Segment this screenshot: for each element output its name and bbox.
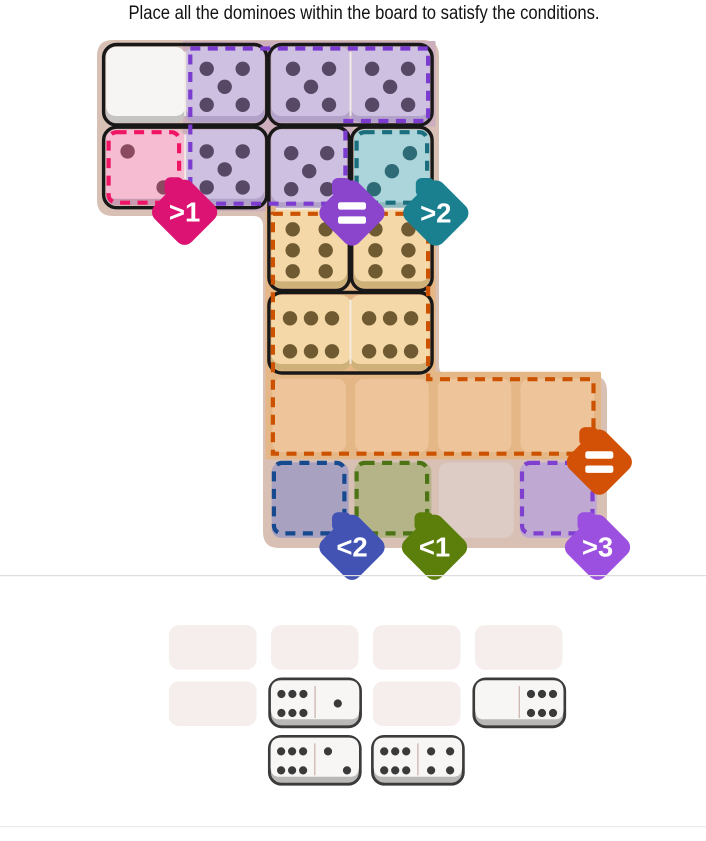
- svg-text:>1: >1: [169, 197, 200, 228]
- svg-text:<2: <2: [336, 532, 367, 563]
- svg-text:>2: >2: [420, 198, 451, 229]
- svg-text:Place all the dominoes within: Place all the dominoes within the board …: [128, 2, 599, 23]
- svg-text:<1: <1: [419, 532, 450, 563]
- svg-text:>3: >3: [582, 532, 613, 563]
